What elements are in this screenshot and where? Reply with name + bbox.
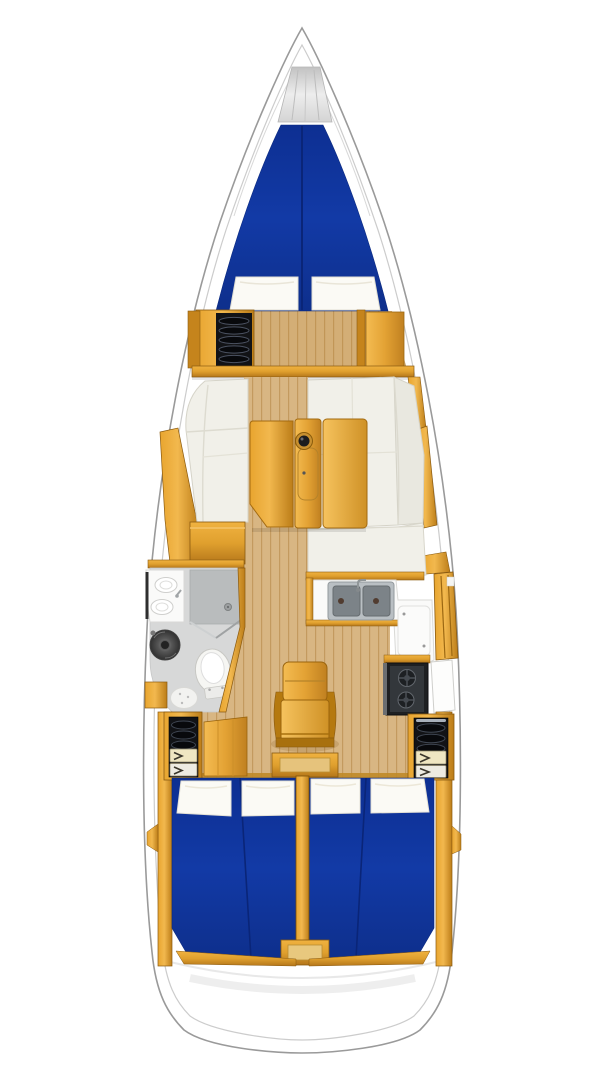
floor-plan-svg <box>0 0 608 1080</box>
galley-faucet-base <box>356 588 360 592</box>
saloon-table-port-leaf <box>250 421 293 527</box>
engine-access-box-inner <box>288 945 322 960</box>
bath-mat <box>171 688 198 709</box>
galley-counter-edge <box>306 578 313 624</box>
sink-drain <box>373 598 379 604</box>
forward-shelf-locker-frame-left <box>188 311 200 368</box>
berth-divider <box>296 776 309 946</box>
locker-drawer <box>170 749 197 762</box>
companionway-backrest <box>283 662 327 702</box>
locker-slat <box>172 741 196 749</box>
shelf-slat <box>219 327 249 334</box>
locker-top-rim <box>416 719 446 722</box>
bottle-holder <box>299 436 310 447</box>
wardrobe-door <box>366 312 404 368</box>
shower-drain-dot <box>227 606 229 608</box>
shelf-slat <box>219 355 249 362</box>
bath-mat-dot <box>187 696 189 698</box>
port-settee <box>186 379 248 522</box>
stove-gimbal-rail <box>383 663 387 715</box>
head-sink-basin <box>151 600 173 615</box>
stove-burner <box>399 670 416 687</box>
head-round-basin-drain <box>161 641 170 650</box>
head-sill <box>148 560 244 568</box>
shelf-slat <box>219 346 249 353</box>
shower-floor <box>190 570 241 624</box>
sink-drain <box>338 598 344 604</box>
galley-fiddle-rail <box>306 620 398 626</box>
fridge-hinge-dot <box>403 613 406 616</box>
head-basin-tap <box>151 631 156 636</box>
companionway-step-tread <box>280 758 330 772</box>
galley-door <box>431 660 455 713</box>
saloon-table-starboard-leaf <box>323 419 367 528</box>
locker-slat <box>417 734 445 742</box>
galley-shelf-slot <box>447 577 454 586</box>
head-sink-basin <box>155 578 177 593</box>
floor-plan-stage <box>0 0 608 1080</box>
table-fitting-dot <box>302 471 305 474</box>
bath-mat-dot <box>181 702 183 704</box>
shelf-slat <box>219 317 249 324</box>
aft-cabin-door-port <box>204 717 247 776</box>
bath-mat-dot <box>179 693 181 695</box>
head-port-locker <box>145 682 167 708</box>
bottle-holder-highlight <box>301 438 304 441</box>
head-faucet-base <box>175 594 179 598</box>
fridge-hinge-dot <box>423 645 426 648</box>
table-shadow <box>252 528 366 532</box>
stove-shelf-trim <box>384 655 430 663</box>
shelf-slat <box>219 336 249 343</box>
locker-slat <box>417 724 445 732</box>
head-compartment <box>145 560 245 712</box>
locker-drawer <box>170 764 197 777</box>
companionway-frame <box>276 738 334 747</box>
locker-slat <box>172 721 196 729</box>
stove-burner <box>398 692 414 708</box>
locker-slat <box>172 731 196 739</box>
galley-sill <box>306 572 424 580</box>
wardrobe-door-frame <box>357 310 365 370</box>
forward-bulkhead <box>192 366 414 377</box>
aft-cabins <box>172 776 434 966</box>
